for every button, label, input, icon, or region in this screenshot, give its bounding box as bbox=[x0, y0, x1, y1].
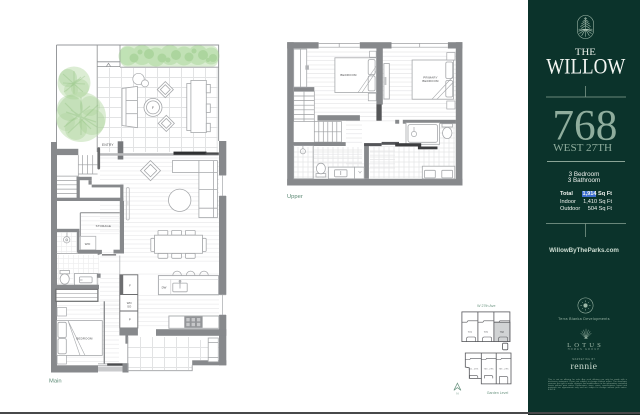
svg-text:770: 770 bbox=[484, 331, 489, 334]
svg-text:768: 768 bbox=[500, 331, 505, 334]
svg-text:W 27th Ave: W 27th Ave bbox=[477, 304, 495, 308]
svg-text:ENTRY: ENTRY bbox=[102, 143, 114, 147]
svg-text:WILLOW: WILLOW bbox=[546, 53, 626, 78]
svg-text:BEDROOM: BEDROOM bbox=[340, 73, 357, 77]
svg-text:772: 772 bbox=[468, 331, 473, 334]
svg-text:BEDROOM: BEDROOM bbox=[422, 79, 439, 83]
svg-text:BEDROOM: BEDROOM bbox=[76, 336, 93, 340]
svg-text:765 - 27th: 765 - 27th bbox=[499, 368, 510, 371]
svg-text:WEST 27TH: WEST 27TH bbox=[553, 143, 613, 154]
svg-text:Garden Level: Garden Level bbox=[487, 391, 509, 395]
svg-text:DW: DW bbox=[162, 286, 167, 290]
svg-text:SO: SO bbox=[127, 305, 132, 309]
svg-text:F: F bbox=[129, 283, 131, 287]
svg-text:763 - 27th: 763 - 27th bbox=[484, 368, 495, 371]
svg-text:Main: Main bbox=[49, 379, 62, 385]
svg-text:761 - 27th: 761 - 27th bbox=[468, 368, 479, 371]
svg-text:N: N bbox=[456, 391, 458, 395]
svg-text:P: P bbox=[129, 317, 131, 321]
svg-text:W/D: W/D bbox=[85, 242, 90, 246]
svg-text:STORAGE: STORAGE bbox=[96, 224, 111, 228]
svg-text:Upper: Upper bbox=[287, 194, 303, 200]
